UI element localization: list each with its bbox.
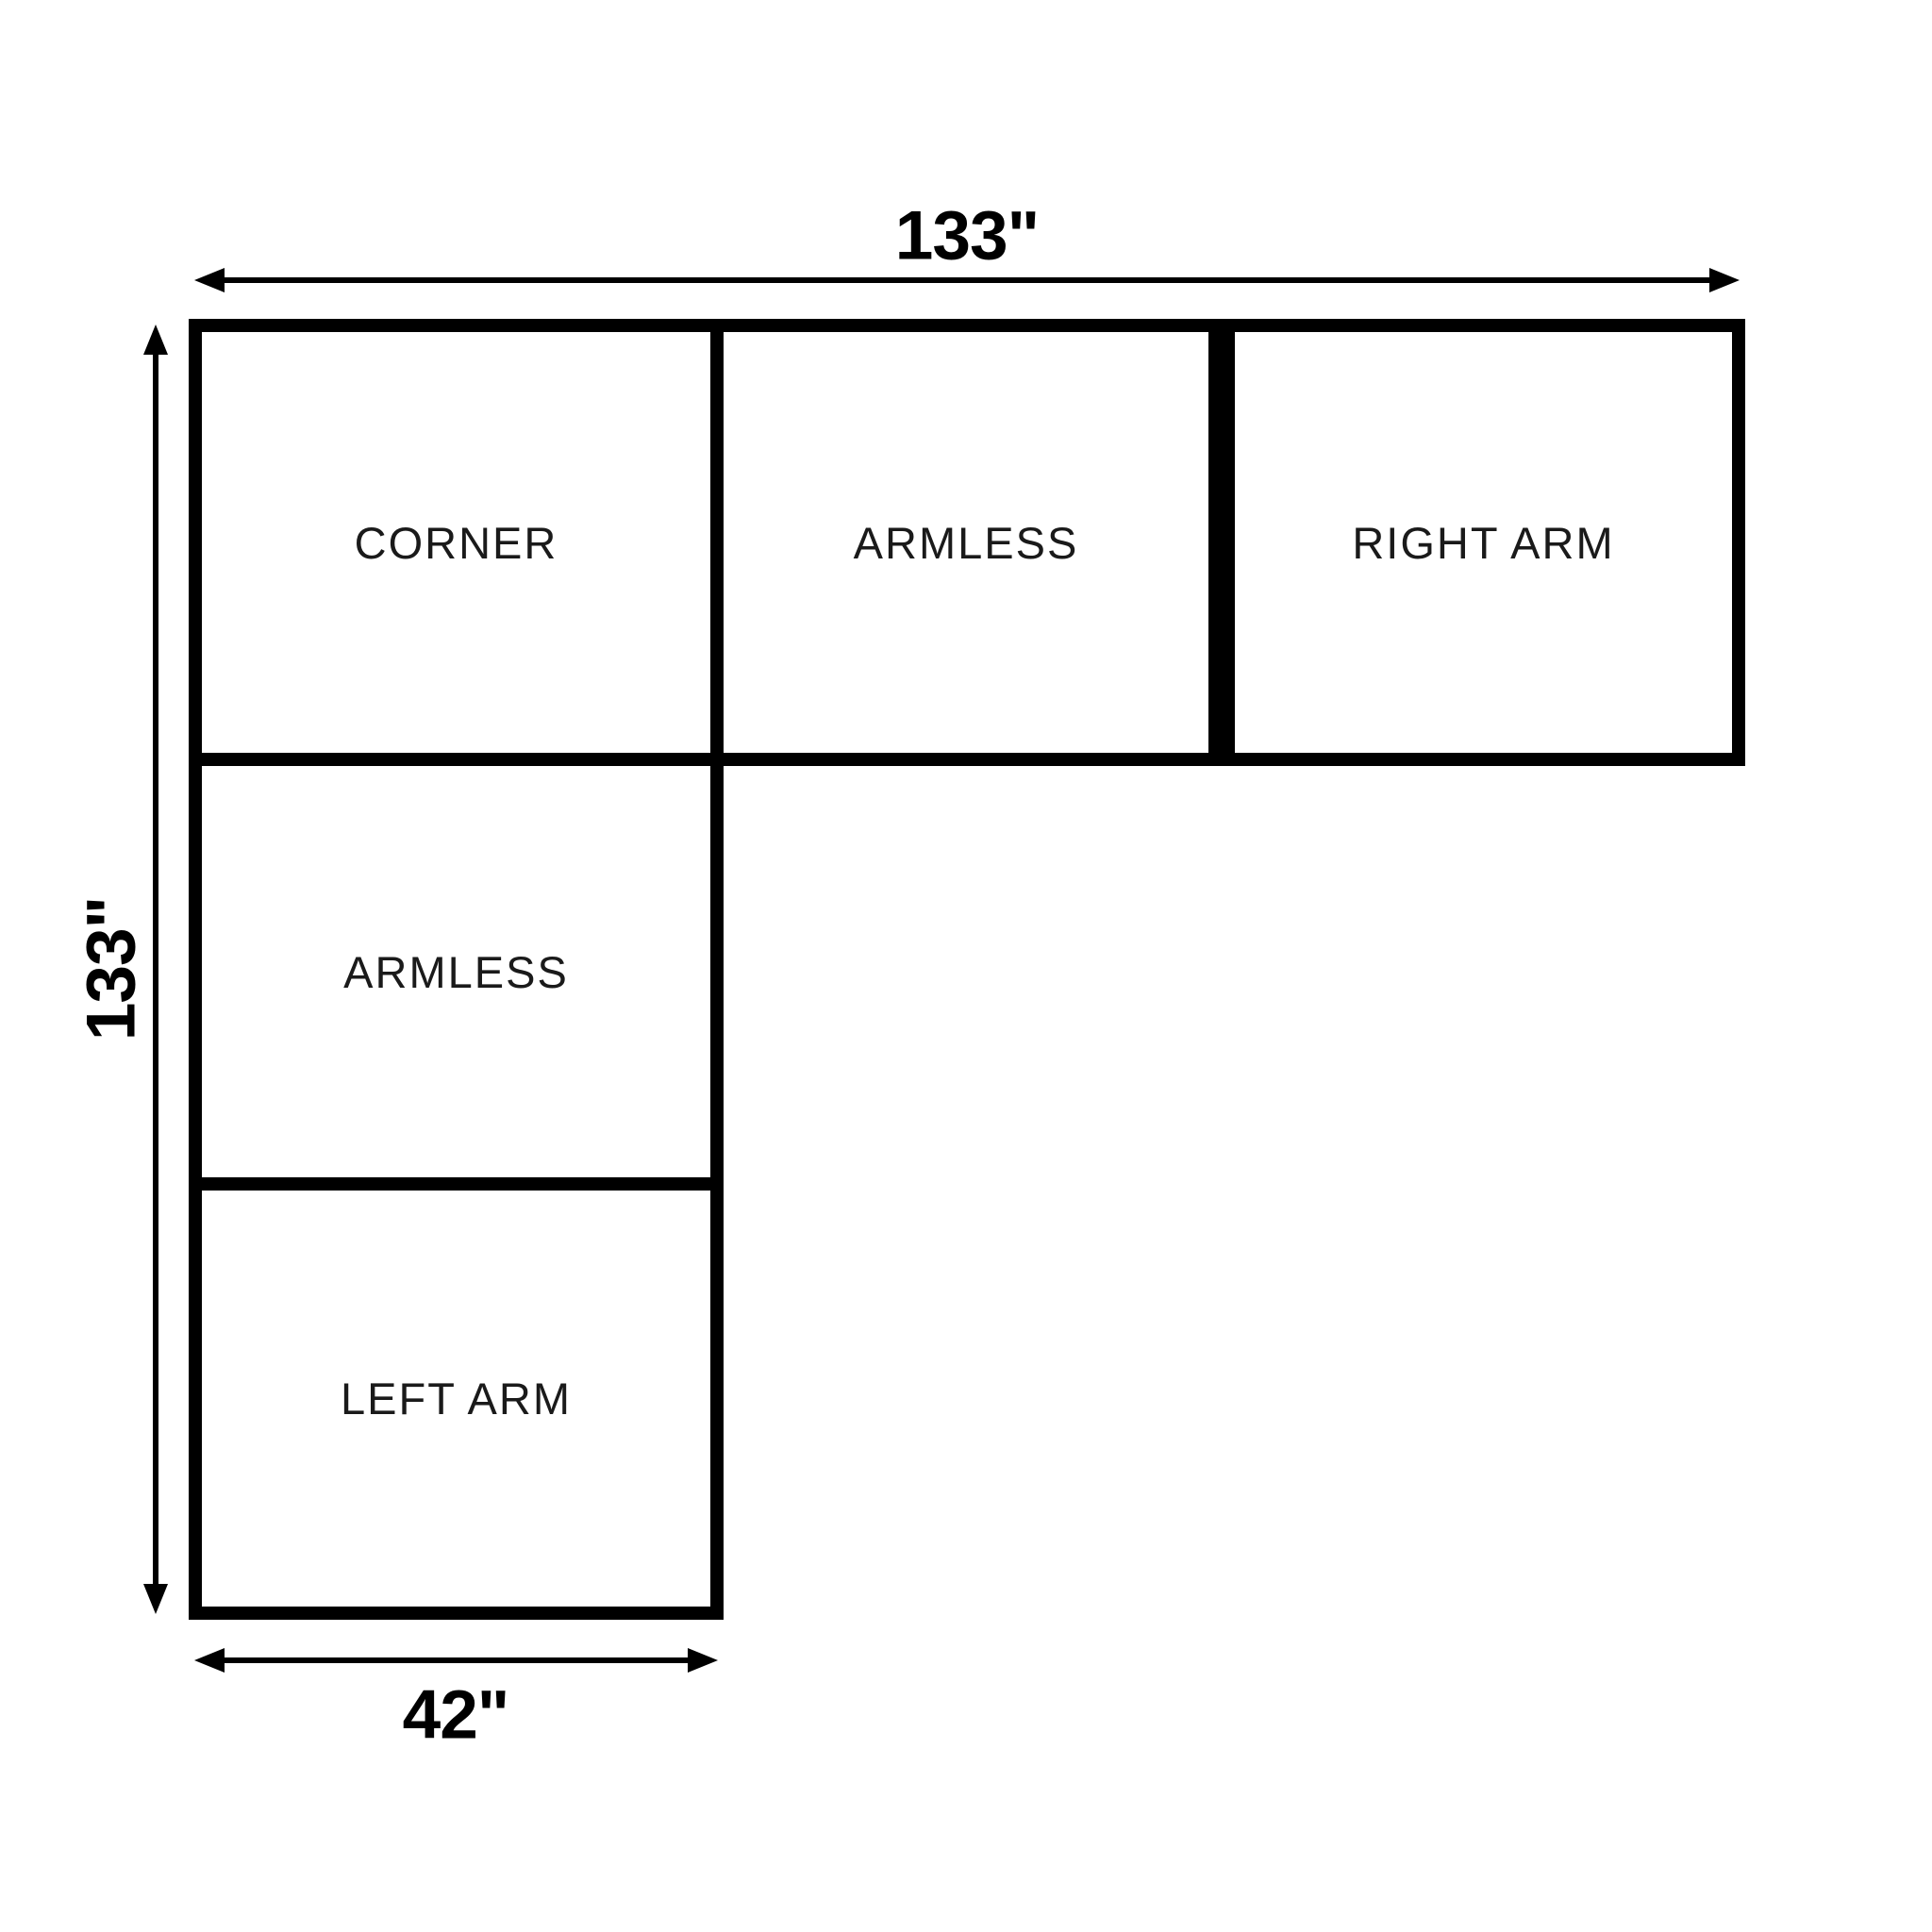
- arrowhead-right-icon: [688, 1648, 718, 1673]
- module-right-arm: RIGHT ARM: [1222, 319, 1745, 766]
- bottom-dimension-label: 42": [403, 1676, 509, 1755]
- top-dimension-label: 133": [895, 197, 1039, 275]
- sectional-sofa-diagram: CORNER ARMLESS RIGHT ARM ARMLESS LEFT AR…: [0, 0, 1932, 1932]
- module-label: LEFT ARM: [341, 1373, 572, 1424]
- arrowhead-left-icon: [194, 1648, 225, 1673]
- module-label: ARMLESS: [854, 517, 1079, 569]
- arrowhead-down-icon: [143, 1584, 168, 1614]
- left-dimension-label: 133": [73, 897, 151, 1041]
- arrowhead-up-icon: [143, 325, 168, 355]
- module-armless-top: ARMLESS: [710, 319, 1222, 766]
- module-armless-left: ARMLESS: [189, 753, 724, 1191]
- bottom-dimension-arrow: [194, 1648, 718, 1673]
- module-label: RIGHT ARM: [1352, 517, 1614, 569]
- module-label: CORNER: [355, 517, 558, 569]
- module-label: ARMLESS: [343, 946, 569, 998]
- module-left-arm: LEFT ARM: [189, 1177, 724, 1620]
- arrowhead-left-icon: [194, 268, 225, 292]
- arrowhead-right-icon: [1709, 268, 1740, 292]
- module-corner: CORNER: [189, 319, 724, 766]
